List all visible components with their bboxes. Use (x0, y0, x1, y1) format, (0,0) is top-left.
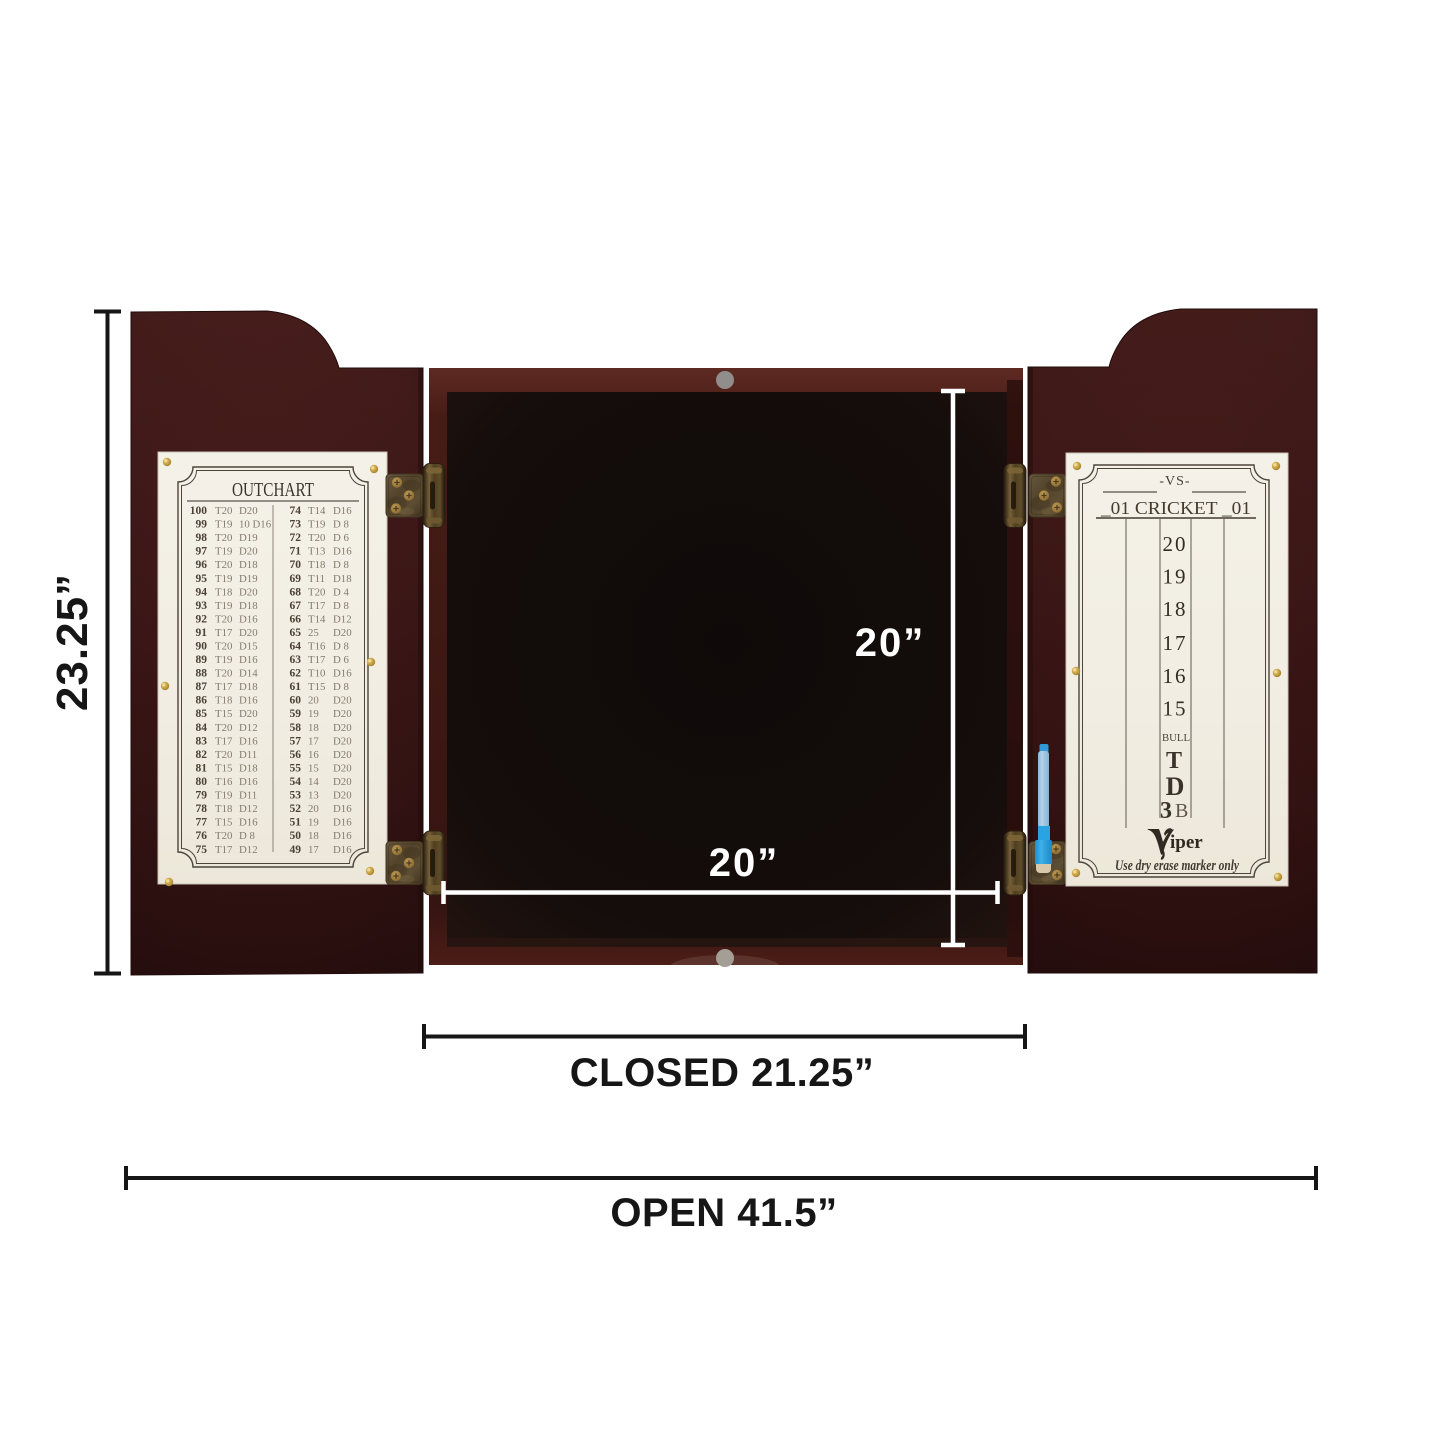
svg-text:D16: D16 (333, 817, 352, 829)
svg-text:T15: T15 (215, 763, 232, 775)
svg-text:T20: T20 (308, 586, 325, 598)
svg-text:T20: T20 (215, 722, 232, 734)
svg-text:OUTCHART: OUTCHART (232, 479, 314, 501)
svg-text:-VS-: -VS- (1159, 474, 1190, 489)
svg-text:T19: T19 (215, 790, 232, 802)
svg-text:D16: D16 (239, 613, 258, 625)
svg-text:79: 79 (196, 790, 208, 802)
svg-text:T16: T16 (308, 641, 326, 653)
svg-text:D 6: D 6 (333, 654, 349, 666)
svg-text:61: 61 (290, 681, 302, 693)
svg-text:71: 71 (290, 546, 302, 558)
svg-text:D16: D16 (333, 505, 352, 517)
svg-text:D20: D20 (333, 708, 352, 720)
svg-text:59: 59 (290, 708, 302, 720)
svg-text:T18: T18 (215, 586, 232, 598)
svg-text:60: 60 (290, 695, 302, 707)
svg-text:99: 99 (196, 519, 208, 531)
svg-text:D18: D18 (333, 573, 352, 585)
svg-text:86: 86 (196, 695, 208, 707)
svg-text:B: B (1175, 800, 1188, 822)
svg-text:D: D (1166, 772, 1185, 801)
svg-text:84: 84 (196, 722, 208, 734)
svg-text:D20: D20 (333, 722, 352, 734)
svg-text:T20: T20 (215, 641, 232, 653)
svg-text:T19: T19 (215, 546, 232, 558)
svg-text:D16: D16 (333, 844, 352, 856)
svg-text:T: T (1166, 748, 1182, 774)
svg-text:94: 94 (196, 586, 208, 598)
svg-text:D12: D12 (333, 613, 352, 625)
svg-text:T14: T14 (308, 505, 326, 517)
svg-text:20: 20 (308, 695, 319, 707)
svg-text:16: 16 (1163, 664, 1188, 688)
svg-text:76: 76 (196, 830, 208, 842)
svg-text:CLOSED 21.25”: CLOSED 21.25” (570, 1051, 874, 1095)
svg-text:T13: T13 (308, 546, 325, 558)
svg-text:D 8: D 8 (333, 641, 349, 653)
svg-text:23.25”: 23.25” (48, 573, 97, 711)
svg-text:T20: T20 (308, 532, 325, 544)
svg-text:T20: T20 (215, 830, 232, 842)
svg-text:T17: T17 (308, 600, 326, 612)
svg-text:D19: D19 (239, 573, 258, 585)
svg-text:D 6: D 6 (333, 532, 349, 544)
svg-text:18: 18 (308, 830, 319, 842)
svg-text:D16: D16 (333, 803, 352, 815)
svg-text:14: 14 (308, 776, 319, 788)
svg-text:T20: T20 (215, 749, 232, 761)
svg-text:D 8: D 8 (333, 559, 349, 571)
svg-text:D15: D15 (239, 641, 258, 653)
svg-text:95: 95 (196, 573, 208, 585)
svg-text:17: 17 (308, 844, 319, 856)
svg-text:T17: T17 (215, 844, 233, 856)
svg-text:67: 67 (290, 600, 302, 612)
svg-text:D12: D12 (239, 844, 258, 856)
svg-text:91: 91 (196, 627, 208, 639)
svg-text:77: 77 (196, 817, 208, 829)
svg-text:T20: T20 (215, 613, 232, 625)
svg-text:Use dry erase marker only: Use dry erase marker only (1115, 858, 1239, 874)
svg-text:D20: D20 (333, 790, 352, 802)
svg-text:74: 74 (290, 505, 302, 517)
svg-text:D 8: D 8 (333, 519, 349, 531)
svg-text:49: 49 (290, 844, 302, 856)
svg-text:D12: D12 (239, 803, 258, 815)
svg-text:98: 98 (196, 532, 208, 544)
svg-text:OPEN 41.5”: OPEN 41.5” (610, 1191, 837, 1235)
svg-text:19: 19 (1163, 565, 1188, 589)
svg-text:T15: T15 (215, 708, 232, 720)
svg-text:19: 19 (308, 708, 319, 720)
svg-text:D18: D18 (239, 559, 258, 571)
svg-text:D11: D11 (239, 749, 257, 761)
svg-text:D 8: D 8 (239, 830, 255, 842)
svg-text:D20: D20 (333, 776, 352, 788)
svg-text:18: 18 (308, 722, 319, 734)
svg-text:15: 15 (1163, 697, 1188, 721)
svg-text:18: 18 (1163, 597, 1188, 621)
svg-text:D20: D20 (239, 708, 258, 720)
svg-text:D18: D18 (239, 763, 258, 775)
svg-text:T17: T17 (308, 654, 326, 666)
svg-text:51: 51 (290, 817, 302, 829)
svg-text:25: 25 (308, 627, 319, 639)
svg-text:62: 62 (290, 668, 302, 680)
svg-text:T16: T16 (215, 776, 233, 788)
svg-text:57: 57 (290, 735, 302, 747)
svg-text:T18: T18 (215, 695, 232, 707)
svg-text:56: 56 (290, 749, 302, 761)
svg-text:D18: D18 (239, 681, 258, 693)
svg-text:66: 66 (290, 613, 302, 625)
svg-text:15: 15 (308, 763, 319, 775)
svg-text:97: 97 (196, 546, 208, 558)
svg-text:T19: T19 (215, 600, 232, 612)
svg-text:17: 17 (1163, 631, 1188, 655)
svg-text:20”: 20” (709, 841, 780, 885)
svg-text:64: 64 (290, 641, 302, 653)
svg-text:D20: D20 (333, 735, 352, 747)
svg-text:D11: D11 (239, 790, 257, 802)
svg-text:T14: T14 (308, 613, 326, 625)
svg-text:T19: T19 (215, 654, 232, 666)
svg-text:88: 88 (196, 668, 208, 680)
svg-text:D14: D14 (239, 668, 258, 680)
svg-text:T15: T15 (308, 681, 325, 693)
svg-text:D20: D20 (239, 627, 258, 639)
svg-text:85: 85 (196, 708, 208, 720)
svg-text:10 D16: 10 D16 (239, 519, 272, 531)
svg-text:93: 93 (196, 600, 208, 612)
svg-text:T17: T17 (215, 681, 233, 693)
svg-text:3: 3 (1160, 798, 1172, 824)
svg-text:T18: T18 (215, 803, 232, 815)
svg-text:81: 81 (196, 763, 208, 775)
svg-text:13: 13 (308, 790, 319, 802)
svg-text:19: 19 (308, 817, 319, 829)
svg-text:D16: D16 (239, 654, 258, 666)
svg-text:58: 58 (290, 722, 302, 734)
svg-text:54: 54 (290, 776, 302, 788)
svg-text:63: 63 (290, 654, 302, 666)
svg-text:78: 78 (196, 803, 208, 815)
svg-text:D16: D16 (239, 695, 258, 707)
svg-text:55: 55 (290, 763, 302, 775)
svg-text:20”: 20” (855, 621, 926, 665)
svg-text:82: 82 (196, 749, 208, 761)
svg-text:T20: T20 (215, 532, 232, 544)
svg-text:100: 100 (190, 505, 208, 517)
svg-text:T19: T19 (308, 519, 325, 531)
svg-text:D20: D20 (239, 586, 258, 598)
svg-text:52: 52 (290, 803, 302, 815)
svg-text:_01 CRICKET _01: _01 CRICKET _01 (1100, 498, 1251, 518)
svg-text:D20: D20 (333, 695, 352, 707)
svg-text:T15: T15 (215, 817, 232, 829)
svg-text:D16: D16 (239, 735, 258, 747)
svg-text:69: 69 (290, 573, 302, 585)
svg-text:16: 16 (308, 749, 319, 761)
svg-text:80: 80 (196, 776, 208, 788)
svg-text:D16: D16 (239, 817, 258, 829)
svg-text:T20: T20 (215, 505, 232, 517)
svg-text:50: 50 (290, 830, 302, 842)
svg-text:D20: D20 (333, 749, 352, 761)
svg-text:T20: T20 (215, 559, 232, 571)
svg-text:17: 17 (308, 735, 319, 747)
svg-text:D12: D12 (239, 722, 258, 734)
svg-text:T19: T19 (215, 519, 232, 531)
svg-text:D16: D16 (333, 830, 352, 842)
svg-text:D19: D19 (239, 532, 258, 544)
svg-text:D16: D16 (239, 776, 258, 788)
svg-text:D20: D20 (239, 546, 258, 558)
svg-text:T11: T11 (308, 573, 325, 585)
svg-text:D16: D16 (333, 546, 352, 558)
svg-text:83: 83 (196, 735, 208, 747)
svg-text:D 8: D 8 (333, 681, 349, 693)
svg-text:70: 70 (290, 559, 302, 571)
svg-text:87: 87 (196, 681, 208, 693)
svg-text:T18: T18 (308, 559, 325, 571)
svg-text:T20: T20 (215, 668, 232, 680)
svg-text:20: 20 (308, 803, 319, 815)
svg-text:73: 73 (290, 519, 302, 531)
svg-text:90: 90 (196, 641, 208, 653)
svg-text:T17: T17 (215, 735, 233, 747)
svg-text:BULL: BULL (1162, 733, 1190, 744)
svg-text:72: 72 (290, 532, 302, 544)
svg-text:T10: T10 (308, 668, 325, 680)
svg-text:D18: D18 (239, 600, 258, 612)
svg-text:T19: T19 (215, 573, 232, 585)
svg-text:T17: T17 (215, 627, 233, 639)
svg-text:D20: D20 (239, 505, 258, 517)
svg-text:53: 53 (290, 790, 302, 802)
svg-text:D 8: D 8 (333, 600, 349, 612)
svg-text:D20: D20 (333, 627, 352, 639)
svg-text:D 4: D 4 (333, 586, 349, 598)
svg-text:68: 68 (290, 586, 302, 598)
svg-text:D16: D16 (333, 668, 352, 680)
svg-text:D20: D20 (333, 763, 352, 775)
svg-text:iper: iper (1170, 832, 1203, 853)
svg-text:92: 92 (196, 613, 208, 625)
svg-text:20: 20 (1163, 532, 1188, 556)
svg-text:89: 89 (196, 654, 208, 666)
svg-text:96: 96 (196, 559, 208, 571)
svg-text:65: 65 (290, 627, 302, 639)
svg-text:75: 75 (196, 844, 208, 856)
